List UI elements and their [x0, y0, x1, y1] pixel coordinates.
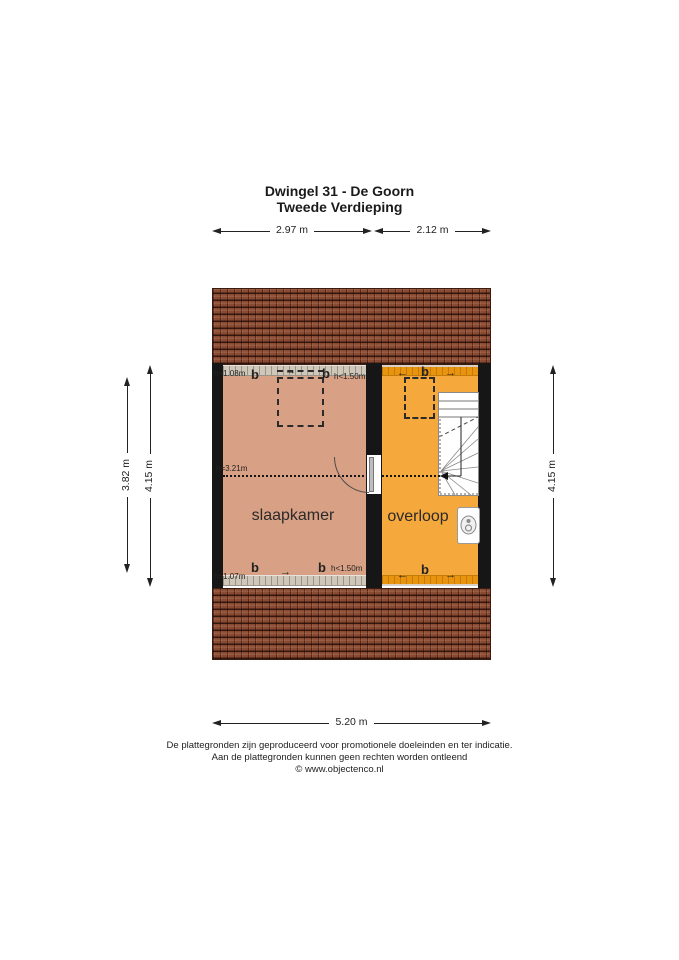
dimension-arrow-right-icon — [124, 377, 130, 386]
height-label: h=3.21m — [216, 464, 247, 473]
dimension-arrow-left-icon — [374, 228, 383, 234]
height-label: h=1.07m — [214, 572, 245, 581]
height-label: h=1.08m — [214, 369, 245, 378]
floorplan-page: Dwingel 31 - De Goorn Tweede Verdieping … — [0, 0, 679, 960]
wall-left — [212, 363, 223, 588]
mechanical-unit — [457, 507, 480, 544]
dimension-arrow-left-icon — [147, 578, 153, 587]
window-label: b — [251, 562, 259, 574]
dimension-left-inner-value: 3.82 m — [120, 453, 132, 497]
page-title: Dwingel 31 - De Goorn Tweede Verdieping — [0, 183, 679, 215]
roof-window-outline-landing — [404, 377, 435, 419]
disclaimer-line-1: De plattegronden zijn geproduceerd voor … — [0, 740, 679, 751]
arrow-left-icon: ← — [397, 570, 408, 580]
dimension-top-right: 2.12 m — [374, 224, 491, 238]
dimension-arrow-right-icon — [147, 365, 153, 374]
window-label: b — [421, 366, 429, 378]
dimension-left-outer-value: 4.15 m — [143, 454, 155, 498]
dimension-arrow-right-icon — [482, 228, 491, 234]
room-label-bedroom: slaapkamer — [233, 507, 353, 525]
dimension-arrow-right-icon — [550, 365, 556, 374]
roof-window-outline-bedroom — [277, 377, 324, 427]
height-label: h<1.50m — [331, 564, 362, 573]
dimension-top-right-value: 2.12 m — [410, 224, 454, 236]
staircase-drawing — [439, 393, 478, 495]
arrow-right-icon: → — [285, 366, 296, 376]
dimension-arrow-left-icon — [212, 228, 221, 234]
window-label: b — [251, 369, 259, 381]
staircase — [438, 392, 479, 496]
dimension-bottom-value: 5.20 m — [329, 716, 373, 728]
dimension-arrow-left-icon — [212, 720, 221, 726]
door-leaf — [369, 457, 374, 492]
dimension-arrow-left-icon — [124, 564, 130, 573]
window-label: b — [318, 562, 326, 574]
dimension-arrow-left-icon — [550, 578, 556, 587]
winder-treads — [441, 427, 478, 495]
mechanical-unit-icon — [458, 508, 479, 543]
roof-top — [212, 288, 491, 365]
copyright-line: © www.objectenco.nl — [0, 764, 679, 775]
height-label: h<1.50m — [334, 372, 365, 381]
dimension-top-left: 2.97 m — [212, 224, 372, 238]
dimension-arrow-right-icon — [363, 228, 372, 234]
roof-bottom — [212, 588, 491, 660]
window-label: b — [322, 368, 330, 380]
dimension-arrow-right-icon — [482, 720, 491, 726]
dimension-right-value: 4.15 m — [546, 454, 558, 498]
title-address: Dwingel 31 - De Goorn — [0, 183, 679, 199]
window-label: b — [421, 564, 429, 576]
wall-right — [478, 363, 491, 588]
arrow-right-icon: → — [445, 570, 456, 580]
arrow-left-icon: ← — [397, 368, 408, 378]
dimension-left-outer: 4.15 m — [143, 365, 157, 587]
disclaimer-line-2: Aan de plattegronden kunnen geen rechten… — [0, 752, 679, 763]
dimension-bottom: 5.20 m — [212, 716, 491, 730]
room-label-landing: overloop — [378, 508, 458, 526]
arrow-right-icon: → — [445, 368, 456, 378]
title-floor: Tweede Verdieping — [0, 199, 679, 215]
ceiling-height-dotted-line — [223, 475, 444, 477]
dimension-right: 4.15 m — [546, 365, 560, 587]
arrow-right-icon: → — [280, 567, 291, 577]
dimension-left-inner: 3.82 m — [120, 377, 134, 573]
dimension-top-left-value: 2.97 m — [270, 224, 314, 236]
